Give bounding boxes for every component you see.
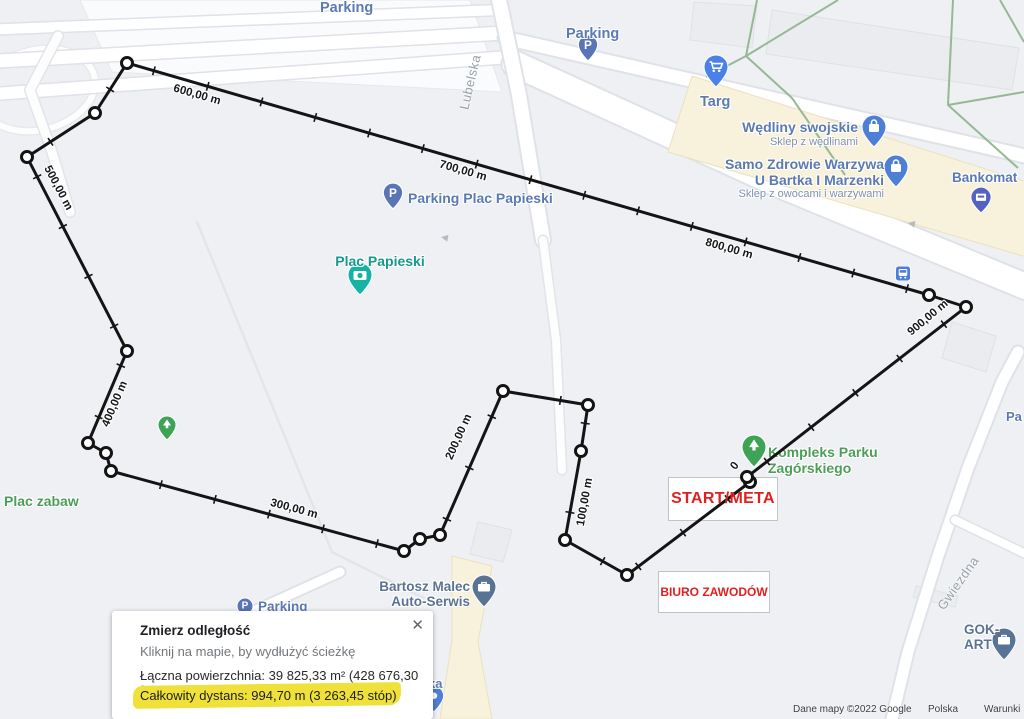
measure-distance-panel: ✕ Zmierz odległość Kliknij na mapie, by … bbox=[112, 611, 433, 719]
route-vertex-handle[interactable] bbox=[83, 438, 94, 449]
route-vertex-handle[interactable] bbox=[560, 535, 571, 546]
panel-title: Zmierz odległość bbox=[140, 623, 250, 638]
route-tick bbox=[566, 512, 575, 514]
route-vertex-handle[interactable] bbox=[415, 534, 426, 545]
panel-total-distance: Całkowity dystans: 994,70 m (3 263,45 st… bbox=[140, 688, 397, 703]
route-vertex-handle[interactable] bbox=[90, 108, 101, 119]
route-vertex-handle[interactable] bbox=[22, 152, 33, 163]
route-vertex-handle[interactable] bbox=[622, 570, 633, 581]
route-tick bbox=[581, 423, 590, 424]
route-vertex-handle[interactable] bbox=[583, 400, 594, 411]
route-vertex-handle[interactable] bbox=[122, 346, 133, 357]
route-vertex-handle[interactable] bbox=[435, 530, 446, 541]
route-vertex-handle[interactable] bbox=[961, 302, 972, 313]
route-vertex-handle[interactable] bbox=[106, 466, 117, 477]
route-path[interactable] bbox=[27, 63, 966, 575]
route-vertex-handle[interactable] bbox=[399, 546, 410, 557]
route-vertex-handle[interactable] bbox=[101, 448, 112, 459]
route-vertex-handle[interactable] bbox=[576, 446, 587, 457]
route-vertex-handle[interactable] bbox=[924, 290, 935, 301]
route-tick bbox=[560, 396, 561, 405]
panel-hint: Kliknij na mapie, by wydłużyć ścieżkę bbox=[140, 644, 355, 659]
route-vertex-handle[interactable] bbox=[742, 472, 753, 483]
route-vertex-handle[interactable] bbox=[498, 386, 509, 397]
race-office-label: BIURO ZAWODÓW bbox=[660, 585, 767, 599]
start-meta-label: START/META bbox=[671, 490, 775, 508]
route-vertex-handle[interactable] bbox=[122, 58, 133, 69]
close-icon[interactable]: ✕ bbox=[411, 616, 424, 634]
map-screenshot: ◀ ◀ P P P Parking Parking Targ bbox=[0, 0, 1024, 719]
